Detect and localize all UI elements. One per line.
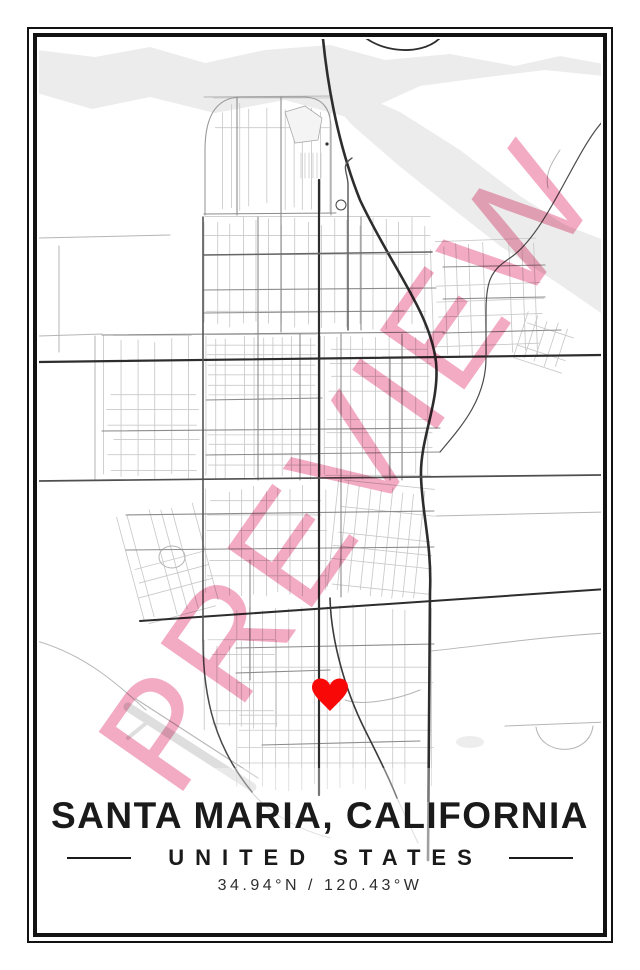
subtitle-country: UNITED STATES xyxy=(157,845,483,871)
map-poster: SANTA MARIA, CALIFORNIA UNITED STATES 34… xyxy=(0,0,640,970)
heart-marker-icon xyxy=(306,672,354,720)
subtitle-row: UNITED STATES xyxy=(0,845,640,871)
subtitle-rule-left xyxy=(67,857,131,859)
coordinates-text: 34.94°N / 120.43°W xyxy=(0,877,640,895)
poster-footer: SANTA MARIA, CALIFORNIA UNITED STATES 34… xyxy=(0,796,640,895)
heart-shape xyxy=(312,678,348,711)
page-title: SANTA MARIA, CALIFORNIA xyxy=(0,796,640,837)
subtitle-rule-right xyxy=(509,857,573,859)
